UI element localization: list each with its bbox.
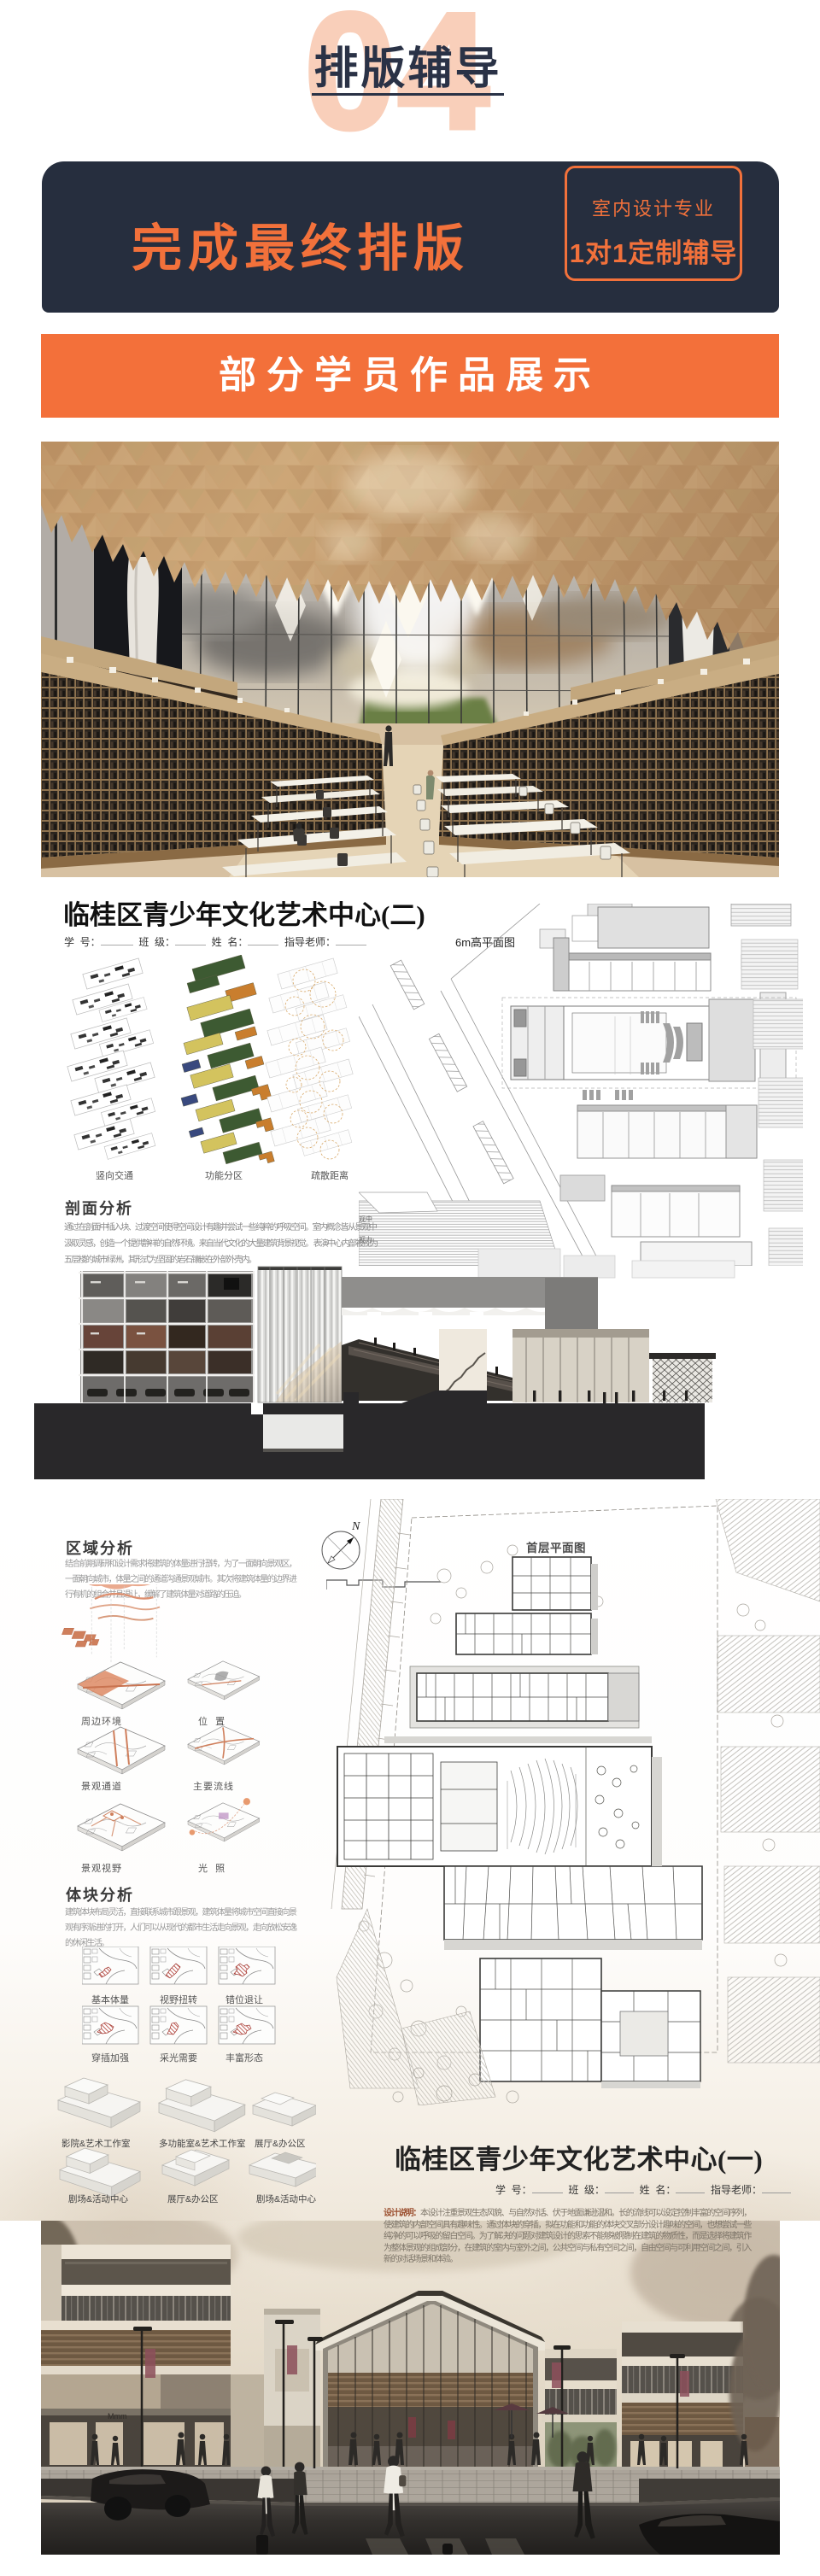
svg-text:Mmm: Mmm — [108, 2412, 127, 2421]
